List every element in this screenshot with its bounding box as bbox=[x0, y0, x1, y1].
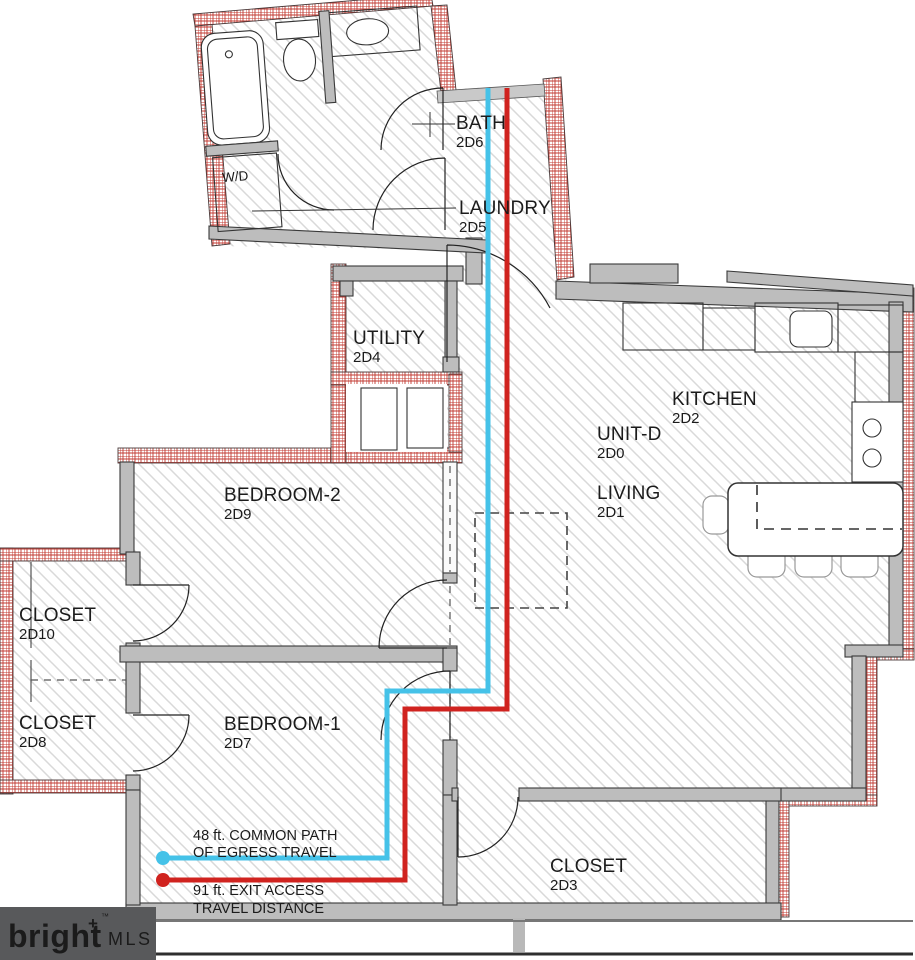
room-code-closet8: 2D8 bbox=[19, 734, 47, 751]
wall-closet-divider-a bbox=[126, 552, 140, 585]
wall-closet3-top-a bbox=[452, 788, 458, 801]
floor-plan-page: W/D bbox=[0, 0, 915, 960]
room-label-closet10: CLOSET bbox=[19, 605, 96, 626]
room-code-bath: 2D6 bbox=[456, 134, 484, 151]
room-code-laundry: 2D5 bbox=[459, 219, 487, 236]
room-label-bedroom1: BEDROOM-1 bbox=[224, 714, 341, 735]
wall-utility-top bbox=[333, 266, 463, 281]
room-code-bedroom1: 2D7 bbox=[224, 735, 252, 752]
room-label-bedroom2: BEDROOM-2 bbox=[224, 485, 341, 506]
wall-right-step bbox=[845, 645, 903, 657]
wall-closet3-top-b bbox=[519, 788, 781, 801]
fire-wall-closet-left bbox=[0, 548, 13, 794]
washer-dryer-label: W/D bbox=[222, 168, 250, 185]
room-code-kitchen: 2D2 bbox=[672, 410, 700, 427]
room-code-living: 2D1 bbox=[597, 504, 625, 521]
wall-bed-junction bbox=[443, 648, 457, 671]
common-path-label-line2: OF EGRESS TRAVEL bbox=[193, 845, 337, 861]
bright-mls-logo: bright + ™ MLS bbox=[0, 907, 156, 960]
room-label-bath: BATH bbox=[456, 113, 506, 134]
fire-wall-shaft-top bbox=[331, 372, 462, 385]
utility-shaft bbox=[346, 384, 447, 452]
room-label-closet3: CLOSET bbox=[550, 856, 627, 877]
logo-trademark: ™ bbox=[101, 912, 109, 921]
wall-closet-divider-c bbox=[126, 775, 140, 790]
room-label-unit: UNIT-D bbox=[597, 424, 662, 445]
room-label-living: LIVING bbox=[597, 483, 661, 504]
room-label-laundry: LAUNDRY bbox=[459, 198, 551, 219]
wall-bed1-right bbox=[443, 740, 457, 795]
wall-utility-pilaster-bottom bbox=[443, 357, 459, 372]
wall-closet3-left bbox=[443, 795, 457, 905]
logo-mls-text: MLS bbox=[108, 929, 153, 949]
room-code-unit: 2D0 bbox=[597, 445, 625, 462]
room-code-bedroom2: 2D9 bbox=[224, 506, 252, 523]
wall-living-halfwall bbox=[443, 462, 457, 573]
room-label-closet8: CLOSET bbox=[19, 713, 96, 734]
wall-bedroom1-left bbox=[126, 790, 140, 905]
wall-closet3-right-inner bbox=[766, 798, 779, 906]
exit-access-label-line2: TRAVEL DISTANCE bbox=[193, 901, 324, 917]
room-code-utility: 2D4 bbox=[353, 349, 381, 366]
wall-pilaster-bed2 bbox=[443, 573, 457, 583]
site-lines bbox=[156, 918, 913, 954]
kitchen-island bbox=[728, 483, 903, 556]
common-path-start-dot bbox=[156, 851, 170, 865]
fire-wall-closet-bottom bbox=[0, 780, 130, 793]
exit-access-label-line1: 91 ft. EXIT ACCESS bbox=[193, 883, 324, 899]
toilet-tank bbox=[276, 20, 319, 40]
exit-access-start-dot bbox=[156, 873, 170, 887]
island-stool-left bbox=[703, 496, 729, 534]
wall-right-lower-inner bbox=[852, 656, 866, 794]
floor-plan-drawing: W/D bbox=[0, 0, 915, 960]
kitchen-sink bbox=[790, 311, 832, 347]
kitchen-range bbox=[852, 402, 903, 482]
room-label-utility: UTILITY bbox=[353, 328, 425, 349]
common-path-label-line1: 48 ft. COMMON PATH bbox=[193, 828, 337, 844]
room-code-closet10: 2D10 bbox=[19, 626, 55, 643]
wall-bedroom2-left bbox=[120, 462, 134, 554]
room-code-closet3: 2D3 bbox=[550, 877, 578, 894]
room-label-kitchen: KITCHEN bbox=[672, 389, 757, 410]
logo-plus-icon: + bbox=[88, 914, 98, 933]
wall-top-bump-a bbox=[590, 264, 678, 283]
wall-utility-pilaster-top bbox=[340, 281, 353, 296]
fire-wall-shaft-right bbox=[449, 374, 462, 452]
fire-wall-closet3-right bbox=[778, 798, 789, 917]
porch-post bbox=[513, 918, 525, 952]
fire-wall-closet-top bbox=[0, 548, 130, 561]
wall-bottom-right-inner bbox=[778, 788, 866, 801]
